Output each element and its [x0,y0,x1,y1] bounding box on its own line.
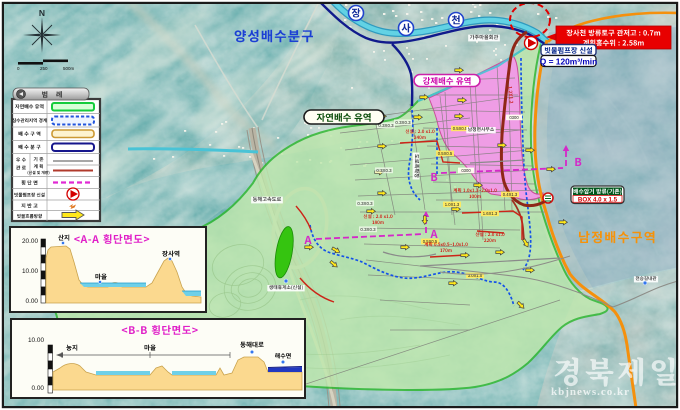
svg-text:10.00: 10.00 [28,337,44,344]
svg-text:0300: 0300 [509,115,519,120]
svg-text:20.00: 20.00 [22,238,38,245]
svg-text:1.6X1.3: 1.6X1.3 [483,211,498,216]
svg-text:kbjnews.co.kr: kbjnews.co.kr [551,386,630,398]
svg-text:500m: 500m [63,66,75,71]
svg-text:N: N [39,8,45,18]
svg-text:0.4X1.3: 0.4X1.3 [503,192,518,197]
svg-text:0.5X0.5: 0.5X0.5 [438,151,453,156]
svg-text:0.3X0.3: 0.3X0.3 [395,120,411,125]
svg-text:0.3X0.3: 0.3X0.3 [357,201,373,206]
svg-text:10.00: 10.00 [22,268,38,275]
svg-text:0.3X0.3: 0.3X0.3 [360,227,376,232]
svg-text:250: 250 [40,66,48,71]
svg-text:0.3X0.3: 0.3X0.3 [376,168,392,173]
svg-text:BOX 4.0 x 1.5: BOX 4.0 x 1.5 [578,196,618,203]
svg-text:0.5X0.5: 0.5X0.5 [453,126,468,131]
svg-text:Q = 120m³/min: Q = 120m³/min [540,56,597,66]
svg-text:0.00: 0.00 [32,385,45,392]
svg-text:0.00: 0.00 [26,298,39,305]
svg-text:1.0X1.3: 1.0X1.3 [445,202,460,207]
svg-text:0300: 0300 [461,168,471,173]
